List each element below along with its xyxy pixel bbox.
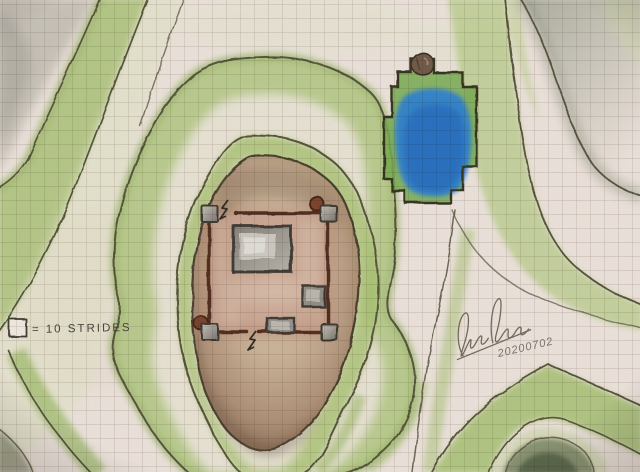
map-canvas: = 10 STRIDES 20200702	[0, 0, 640, 472]
map-photo: = 10 STRIDES 20200702	[0, 0, 640, 472]
paper-grain-overlay	[0, 0, 640, 472]
